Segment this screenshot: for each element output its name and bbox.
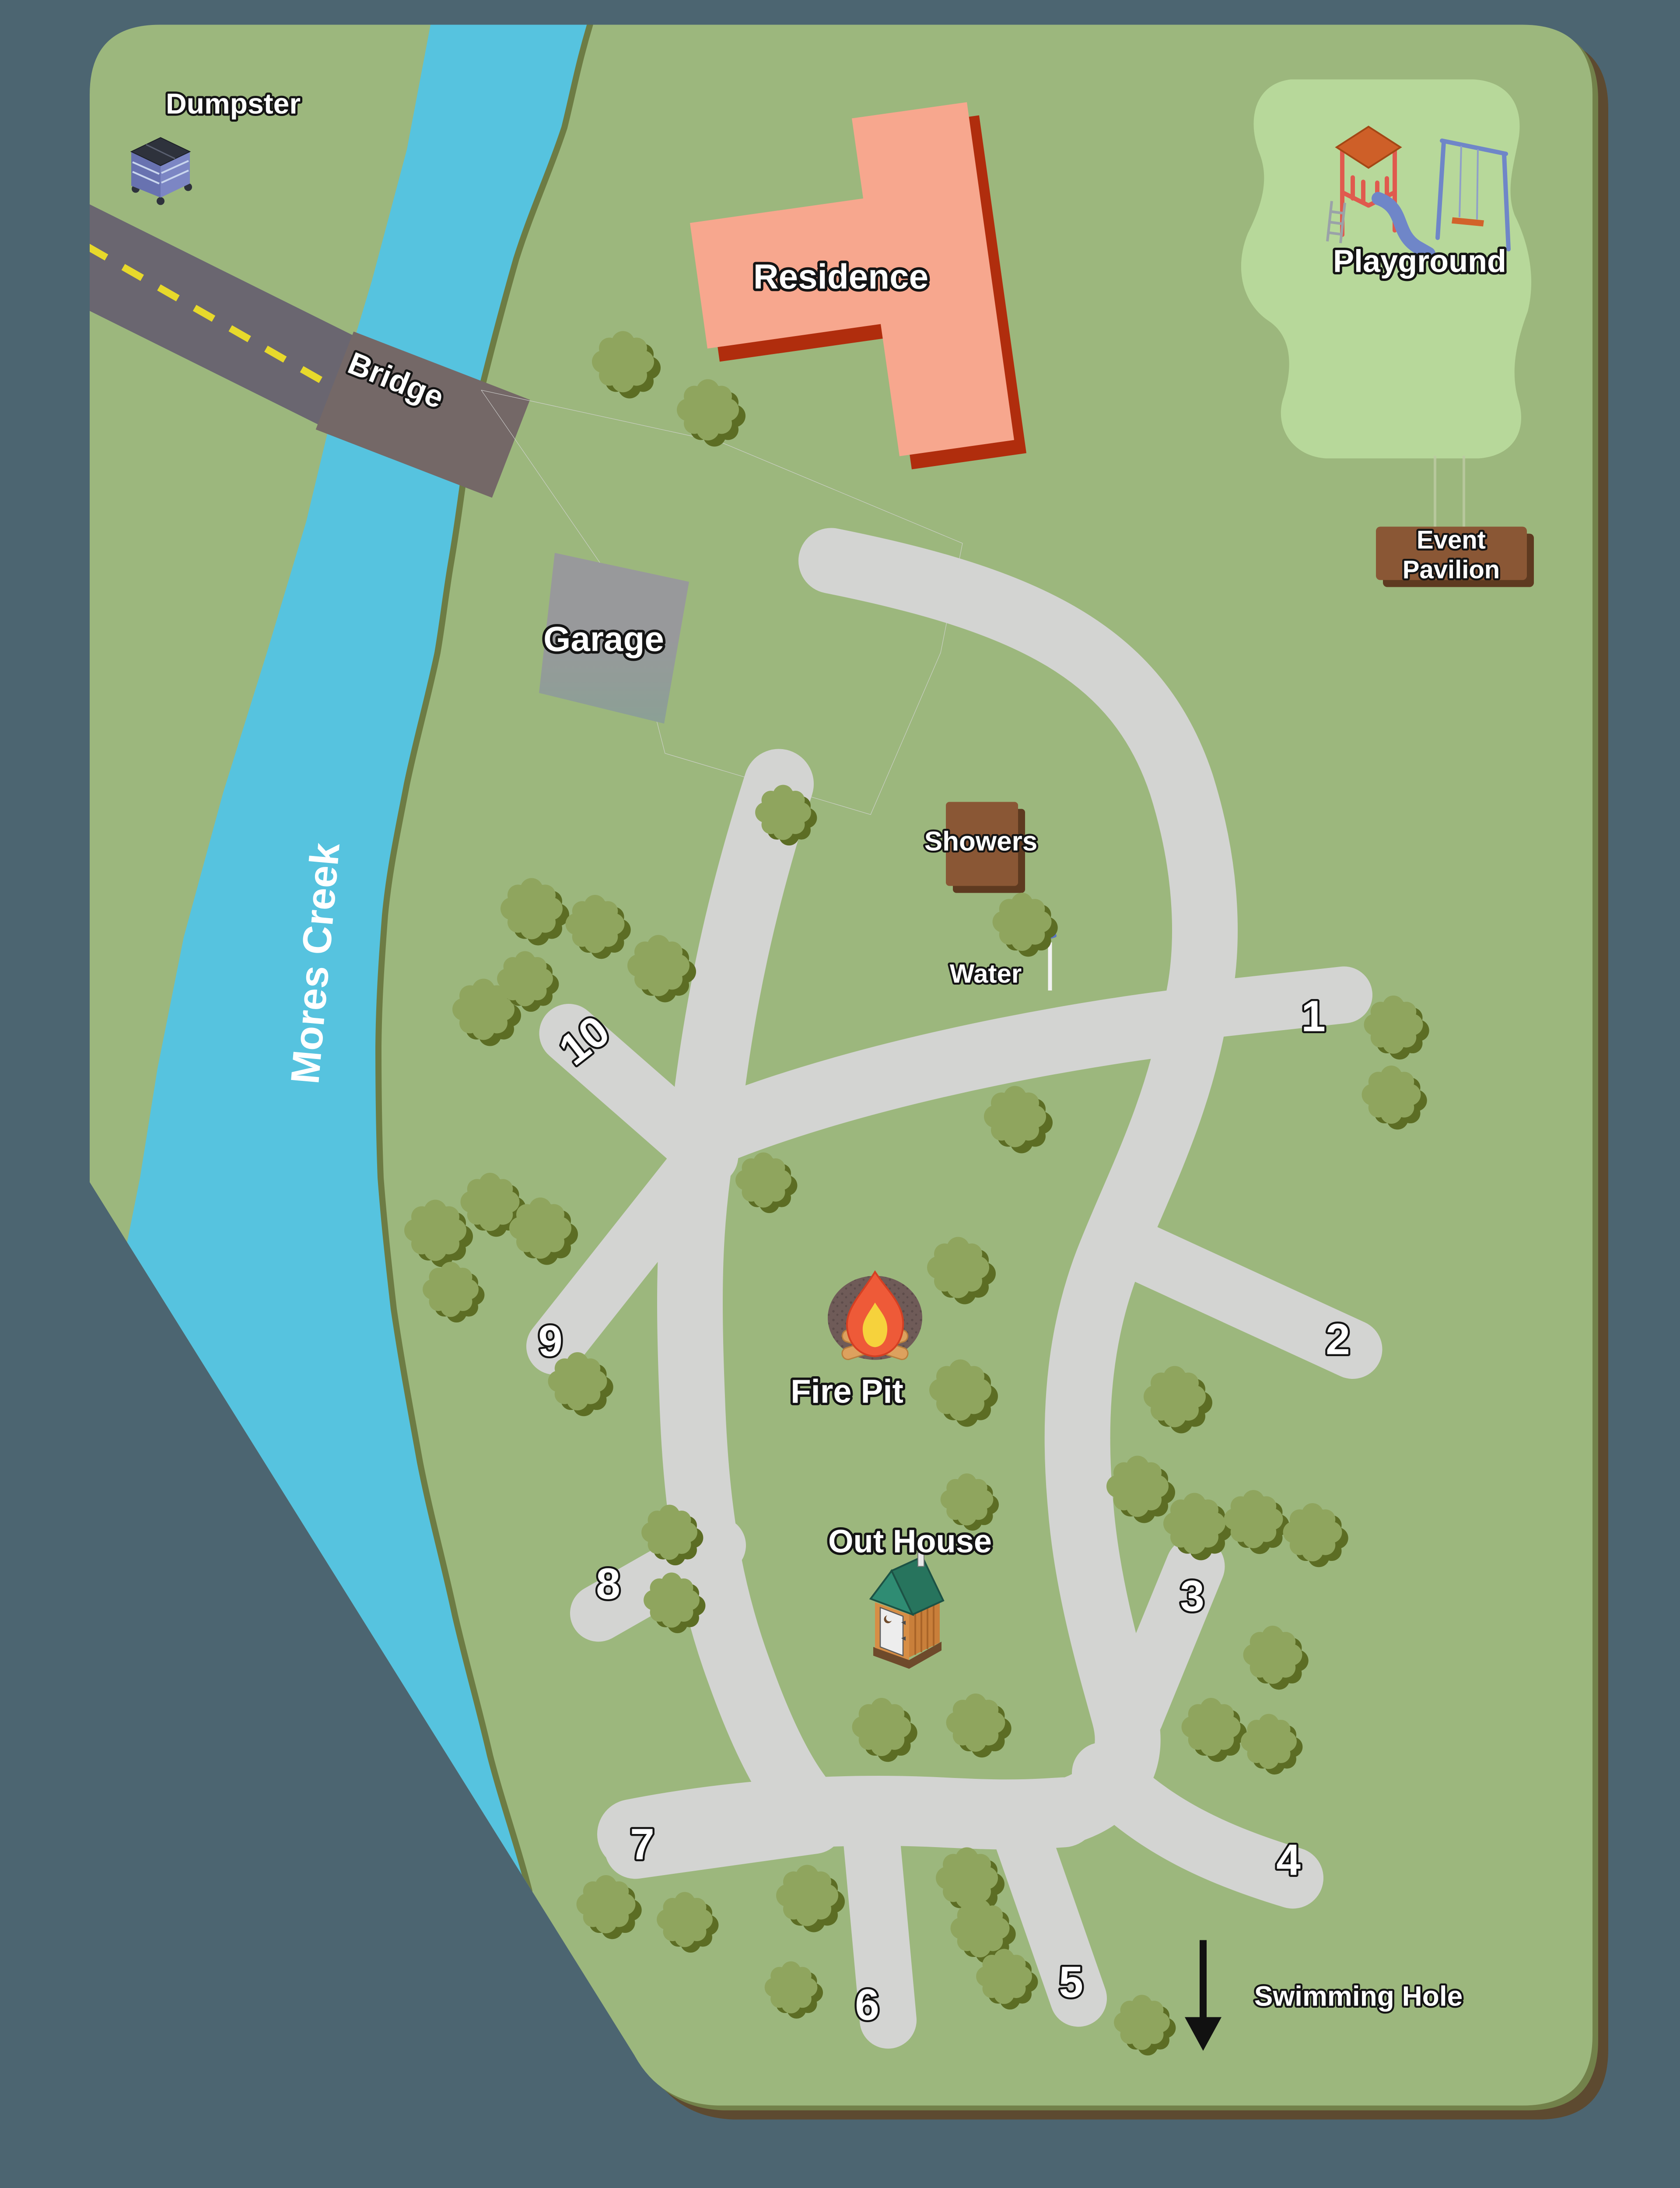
campsite-6-label: 6: [855, 1981, 879, 2030]
campsite-7-label: 7: [630, 1820, 654, 1869]
showers-label: Showers: [924, 827, 1037, 857]
event-pavilion-label-line1: Event: [1417, 526, 1486, 554]
dumpster-label: Dumpster: [166, 88, 301, 120]
campsite-4-label: 4: [1276, 1836, 1301, 1885]
campsite-9-label: 9: [538, 1317, 563, 1366]
fire-pit-label: Fire Pit: [791, 1373, 903, 1410]
campsite-1-label: 1: [1301, 992, 1326, 1041]
spur-7: [635, 1823, 814, 1848]
campsite-5-label: 5: [1059, 1958, 1083, 2007]
garage-label: Garage: [543, 620, 664, 659]
residence-label: Residence: [753, 257, 928, 296]
swimming-hole-label: Swimming Hole: [1254, 1981, 1463, 2012]
out-house-label: Out House: [828, 1523, 992, 1560]
campsite-2-label: 2: [1326, 1315, 1350, 1364]
campsite-8-label: 8: [596, 1560, 620, 1609]
event-pavilion-label-line2: Pavilion: [1403, 556, 1500, 584]
campground-map: Mores Creek Bridge Dumpster Residence Pl…: [0, 0, 1680, 2188]
playground-label: Playground: [1333, 244, 1506, 279]
campsite-3-label: 3: [1180, 1572, 1204, 1621]
water-label: Water: [950, 959, 1022, 989]
